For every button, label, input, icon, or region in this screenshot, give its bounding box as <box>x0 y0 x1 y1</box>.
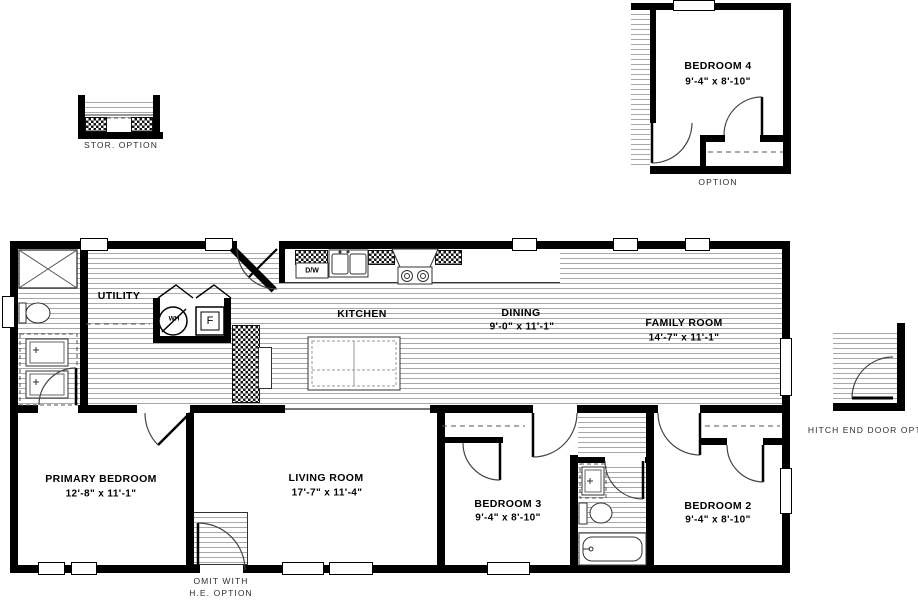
water-heater-label: WH <box>169 316 180 323</box>
stor-option-lines <box>85 115 153 118</box>
entry-door <box>232 248 277 290</box>
toilet-icon-bath2 <box>579 503 612 524</box>
family-room-label: FAMILY ROOM <box>645 317 722 329</box>
dining-label: DINING <box>501 307 540 319</box>
primary-bedroom-label: PRIMARY BEDROOM <box>45 473 157 485</box>
bedroom2-dims: 9'-4" x 8'-10" <box>685 515 750 526</box>
utility-label: UTILITY <box>98 290 140 302</box>
bedroom3-label: BEDROOM 3 <box>474 498 541 510</box>
living-room-dims: 17'-7" x 11'-4" <box>292 488 363 499</box>
bedroom4-label: BEDROOM 4 <box>684 60 751 72</box>
bifold-doors-icon <box>158 285 231 298</box>
bedroom4-entry-door <box>652 123 692 163</box>
vanity-icon-bath1 <box>20 334 77 405</box>
vanity-icon-bath2 <box>580 464 606 498</box>
primary-bedroom-door <box>145 413 190 445</box>
shower-icon <box>19 250 77 288</box>
bedroom3-door <box>442 426 525 480</box>
he-option-door <box>198 523 245 570</box>
primary-bedroom-dims: 12'-8" x 11'-1" <box>66 489 137 500</box>
bedroom4-dims: 9'-4" x 8'-10" <box>685 77 750 88</box>
bedroom2-door <box>658 413 700 455</box>
dining-dims: 9'-0" x 11'-1" <box>490 322 555 333</box>
kitchen-label: KITCHEN <box>337 308 386 320</box>
living-room-label: LIVING ROOM <box>289 472 364 484</box>
bedroom4-option-label: OPTION <box>698 177 737 187</box>
stor-option-label: STOR. OPTION <box>84 140 158 150</box>
range-icon <box>392 249 438 284</box>
toilet-icon-bath1 <box>19 303 50 323</box>
bathtub-icon <box>579 533 646 565</box>
hitch-option-label: HITCH END DOOR OPT. <box>808 425 918 435</box>
he-option-label-line1: OMIT WITH <box>193 576 248 586</box>
bedroom2-label: BEDROOM 2 <box>684 500 751 512</box>
hall-door <box>533 413 577 457</box>
dishwasher-label: D/W <box>305 268 319 275</box>
kitchen-sink-icon <box>329 250 368 277</box>
kitchen-island <box>308 337 400 390</box>
furnace-label: F <box>207 315 214 327</box>
bath2-door <box>605 461 643 499</box>
bedroom2-closet-door <box>705 426 780 482</box>
floor-plan: STOR. OPTION BEDROOM 4 9'-4" x 8'-10" OP… <box>0 0 918 601</box>
bedroom4-closet-door <box>708 97 783 152</box>
family-room-dims: 14'-7" x 11'-1" <box>649 333 720 344</box>
he-option-label-line2: H.E. OPTION <box>189 588 253 598</box>
bedroom3-dims: 9'-4" x 8'-10" <box>475 513 540 524</box>
hitch-end-door <box>852 357 893 398</box>
